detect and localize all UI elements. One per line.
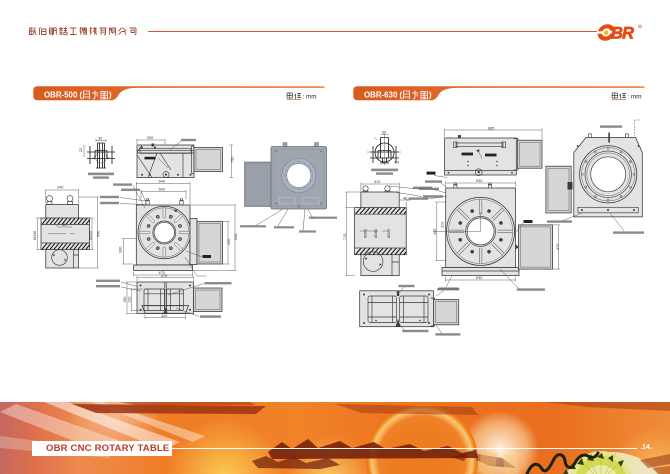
svg-text:BR: BR	[611, 24, 634, 42]
svg-text:630: 630	[476, 179, 482, 183]
svg-text:150: 150	[123, 297, 127, 303]
svg-text:250: 250	[147, 136, 153, 140]
svg-text:46: 46	[403, 197, 407, 201]
svg-text:36: 36	[382, 131, 386, 135]
svg-text:30: 30	[98, 137, 102, 141]
svg-text:240: 240	[57, 186, 63, 190]
svg-text:470: 470	[556, 244, 560, 250]
svg-text:310: 310	[441, 222, 445, 228]
svg-text:400: 400	[433, 229, 437, 235]
svg-text:): )	[109, 91, 112, 100]
svg-text:Ø360: Ø360	[364, 229, 368, 238]
svg-text:): )	[429, 91, 432, 100]
svg-text:540: 540	[159, 180, 165, 184]
svg-text:1.5: 1.5	[394, 161, 399, 165]
svg-text:: mm: : mm	[303, 94, 317, 100]
svg-text:30: 30	[62, 223, 66, 227]
svg-text:540: 540	[234, 234, 238, 240]
svg-text:310: 310	[374, 180, 380, 184]
svg-text:420: 420	[161, 314, 167, 318]
svg-text:885: 885	[488, 126, 494, 130]
svg-text:120: 120	[128, 297, 132, 303]
svg-text:500: 500	[159, 188, 165, 192]
svg-text:470: 470	[161, 274, 167, 278]
svg-text:: mm: : mm	[628, 94, 642, 100]
svg-text:630: 630	[476, 276, 482, 280]
svg-text:OBR-500 (: OBR-500 (	[44, 91, 83, 100]
svg-text:Ø330: Ø330	[33, 231, 37, 240]
svg-text:Ø350: Ø350	[89, 231, 93, 240]
svg-text:540: 540	[97, 231, 101, 237]
svg-text:22: 22	[79, 148, 83, 152]
svg-text:Ø320: Ø320	[387, 229, 391, 238]
svg-text:330: 330	[119, 247, 123, 253]
svg-text:750: 750	[231, 157, 235, 163]
svg-text:420: 420	[227, 239, 231, 245]
svg-text:OBR-630 (: OBR-630 (	[364, 91, 403, 100]
svg-text:715: 715	[343, 234, 347, 240]
svg-text:Ø280: Ø280	[374, 229, 378, 238]
